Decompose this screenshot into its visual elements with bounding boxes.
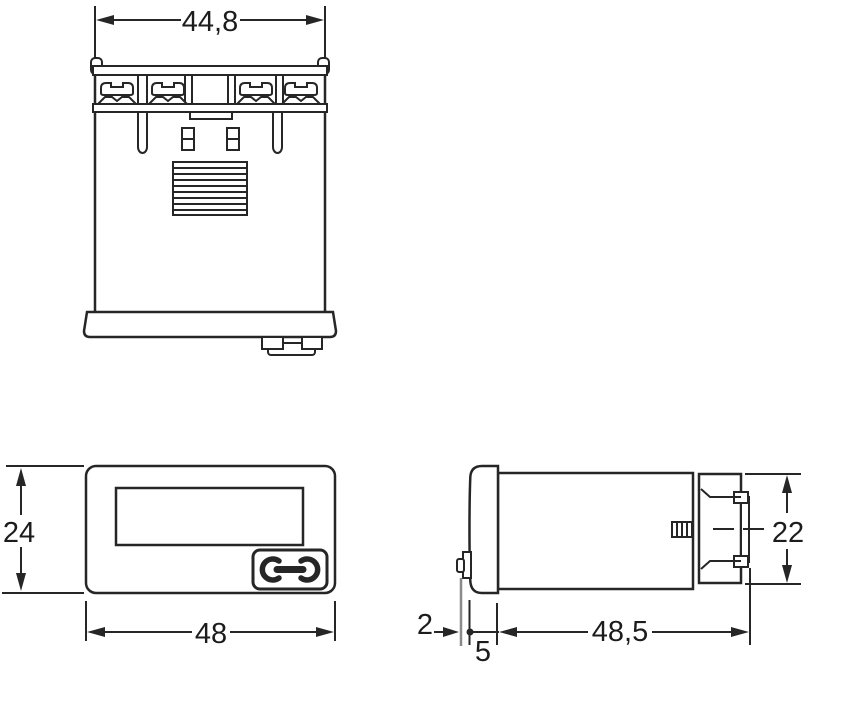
terminal-bottom-rail (93, 104, 327, 112)
dim-front-height: 24 (2, 466, 84, 593)
mounting-slot-left (138, 112, 147, 153)
arrow-left-icon (87, 627, 105, 637)
mounting-slot-right (273, 112, 282, 153)
arrow-left-icon (96, 15, 114, 25)
terminal-divider (276, 75, 283, 104)
dim-label-front-height: 24 (3, 517, 35, 549)
front-bezel-edge (84, 312, 336, 337)
terminal-screw (149, 83, 187, 104)
arrow-down-icon (16, 573, 26, 591)
reset-key-shaft (457, 552, 471, 578)
rear-view: 44,8 (84, 6, 336, 355)
side-body (498, 473, 693, 589)
dip-switch-left (182, 128, 194, 150)
dim-rear-width: 44,8 (95, 6, 325, 60)
terminal-top-rail (93, 66, 327, 75)
dim-label-bezel-depth: 5 (475, 636, 491, 668)
side-view: 22 2 5 48,5 (417, 466, 804, 668)
arrow-right-icon (316, 627, 334, 637)
terminal-divider (185, 75, 192, 104)
dim-label-key-protrusion: 2 (417, 609, 433, 641)
arrow-up-icon (16, 468, 26, 486)
arrow-right-icon (306, 15, 324, 25)
arrow-left-icon (499, 627, 517, 637)
terminal-divider (228, 75, 235, 104)
vent-grille (173, 162, 247, 215)
side-bezel (469, 466, 498, 593)
dim-label-front-width: 48 (195, 618, 227, 650)
dimension-drawing: 44,8 (0, 0, 844, 720)
arrow-right-icon (731, 627, 749, 637)
dip-switch-right (227, 128, 239, 150)
dim-label-block-height: 22 (772, 517, 804, 549)
terminal-screw (282, 83, 320, 104)
dim-label-case-depth: 48,5 (592, 616, 648, 648)
terminal-divider (138, 75, 147, 104)
display-window (116, 488, 303, 545)
terminal-screw (98, 83, 136, 104)
front-view: 24 48 (2, 466, 335, 650)
bottom-latch (262, 337, 322, 355)
side-clip (672, 522, 692, 537)
rear-device-outline (84, 58, 336, 355)
terminal-screw (237, 83, 275, 104)
center-notch (190, 112, 232, 119)
arrow-up-icon (782, 475, 792, 493)
dim-label-rear-width: 44,8 (182, 6, 238, 38)
arrow-right-icon (443, 627, 459, 637)
dim-front-width: 48 (86, 601, 335, 650)
arrow-down-icon (782, 565, 792, 583)
technical-drawing-page: 44,8 (0, 0, 844, 720)
